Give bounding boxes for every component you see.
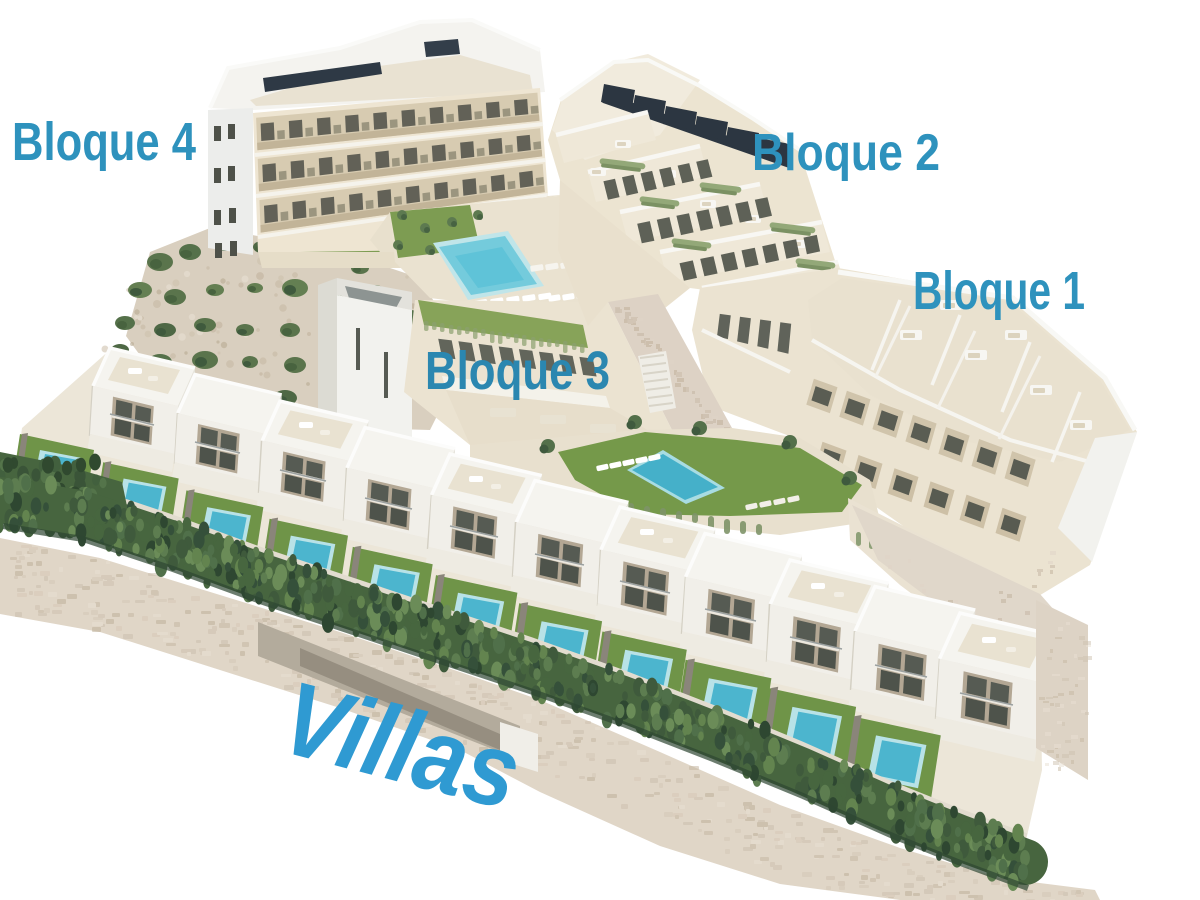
- svg-text:Bloque 4: Bloque 4: [12, 112, 196, 172]
- svg-text:Bloque 3: Bloque 3: [425, 341, 610, 401]
- svg-text:Bloque 1: Bloque 1: [913, 261, 1085, 321]
- svg-text:Bloque 2: Bloque 2: [752, 124, 940, 182]
